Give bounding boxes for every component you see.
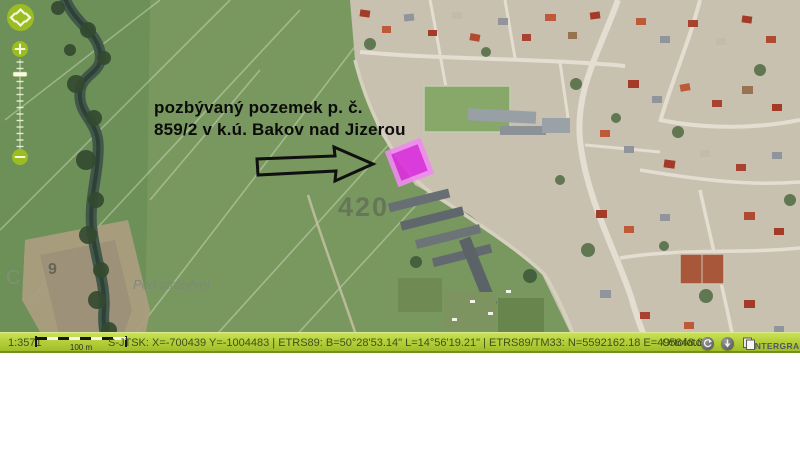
orthophoto-image: 420 Pod stráněmi 9 C	[0, 0, 800, 353]
active-layer-label: Ortofoto	[662, 337, 702, 349]
refresh-button[interactable]	[701, 337, 714, 350]
download-view-button[interactable]	[721, 337, 734, 350]
map-navigation-controls	[0, 0, 44, 180]
intergraph-logo-text: INTERGRAPH	[752, 341, 800, 351]
sports-field	[424, 86, 510, 132]
zoom-slider-handle[interactable]	[13, 72, 27, 77]
pan-control[interactable]	[7, 4, 34, 31]
scale-bar-label: 100 m	[70, 343, 93, 352]
copy-view-button[interactable]	[742, 337, 756, 350]
copy-page-icon	[742, 337, 756, 350]
map-annotation: pozbývaný pozemek p. č. 859/2 v k.ú. Bak…	[154, 97, 406, 141]
zoom-in-button[interactable]	[12, 41, 28, 57]
place-name-label: Pod stráněmi	[133, 277, 211, 292]
down-arrow-icon	[721, 337, 734, 350]
zoom-out-button[interactable]	[12, 149, 28, 165]
status-bar: 1:3571 100 m S-JTSK: X=-700439 Y=-100448…	[0, 332, 800, 353]
small-map-label-c: C	[6, 267, 20, 289]
refresh-icon	[701, 337, 714, 350]
intergraph-logo: INTERGRAPH	[752, 338, 800, 353]
map-canvas[interactable]: 420 Pod stráněmi 9 C pozbývaný pozemek p…	[0, 0, 800, 353]
coordinates-readout: S-JTSK: X=-700439 Y=-1004483 | ETRS89: B…	[108, 337, 709, 349]
small-map-label-9: 9	[48, 261, 57, 278]
annotation-line2: 859/2 v k.ú. Bakov nad Jizerou	[154, 119, 406, 141]
tennis-courts	[680, 254, 724, 284]
annotation-line1: pozbývaný pozemek p. č.	[154, 97, 406, 119]
app-window: 420 Pod stráněmi 9 C pozbývaný pozemek p…	[0, 0, 800, 450]
parcel-number-label: 420	[338, 192, 389, 222]
zoom-slider[interactable]	[13, 59, 27, 149]
